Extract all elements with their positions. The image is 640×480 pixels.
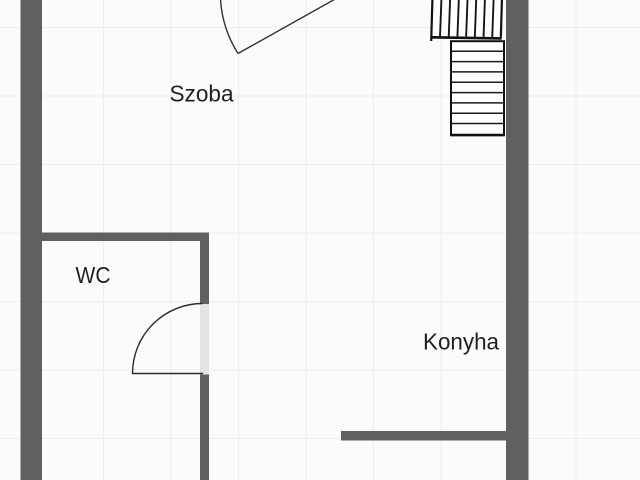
svg-text:Szoba: Szoba: [170, 81, 234, 107]
svg-text:Konyha: Konyha: [423, 329, 499, 355]
svg-text:WC: WC: [76, 262, 111, 288]
